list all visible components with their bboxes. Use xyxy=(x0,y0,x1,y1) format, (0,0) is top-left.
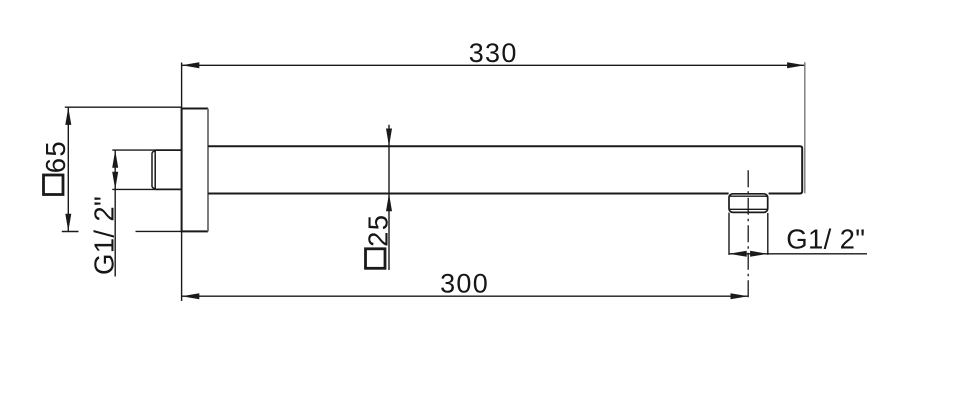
svg-text:25: 25 xyxy=(363,214,394,247)
svg-text:300: 300 xyxy=(440,269,489,299)
svg-text:330: 330 xyxy=(469,38,518,68)
svg-text:65: 65 xyxy=(40,140,71,173)
svg-text:G1/ 2": G1/ 2" xyxy=(786,224,865,255)
svg-text:G1/ 2": G1/ 2" xyxy=(89,196,120,275)
